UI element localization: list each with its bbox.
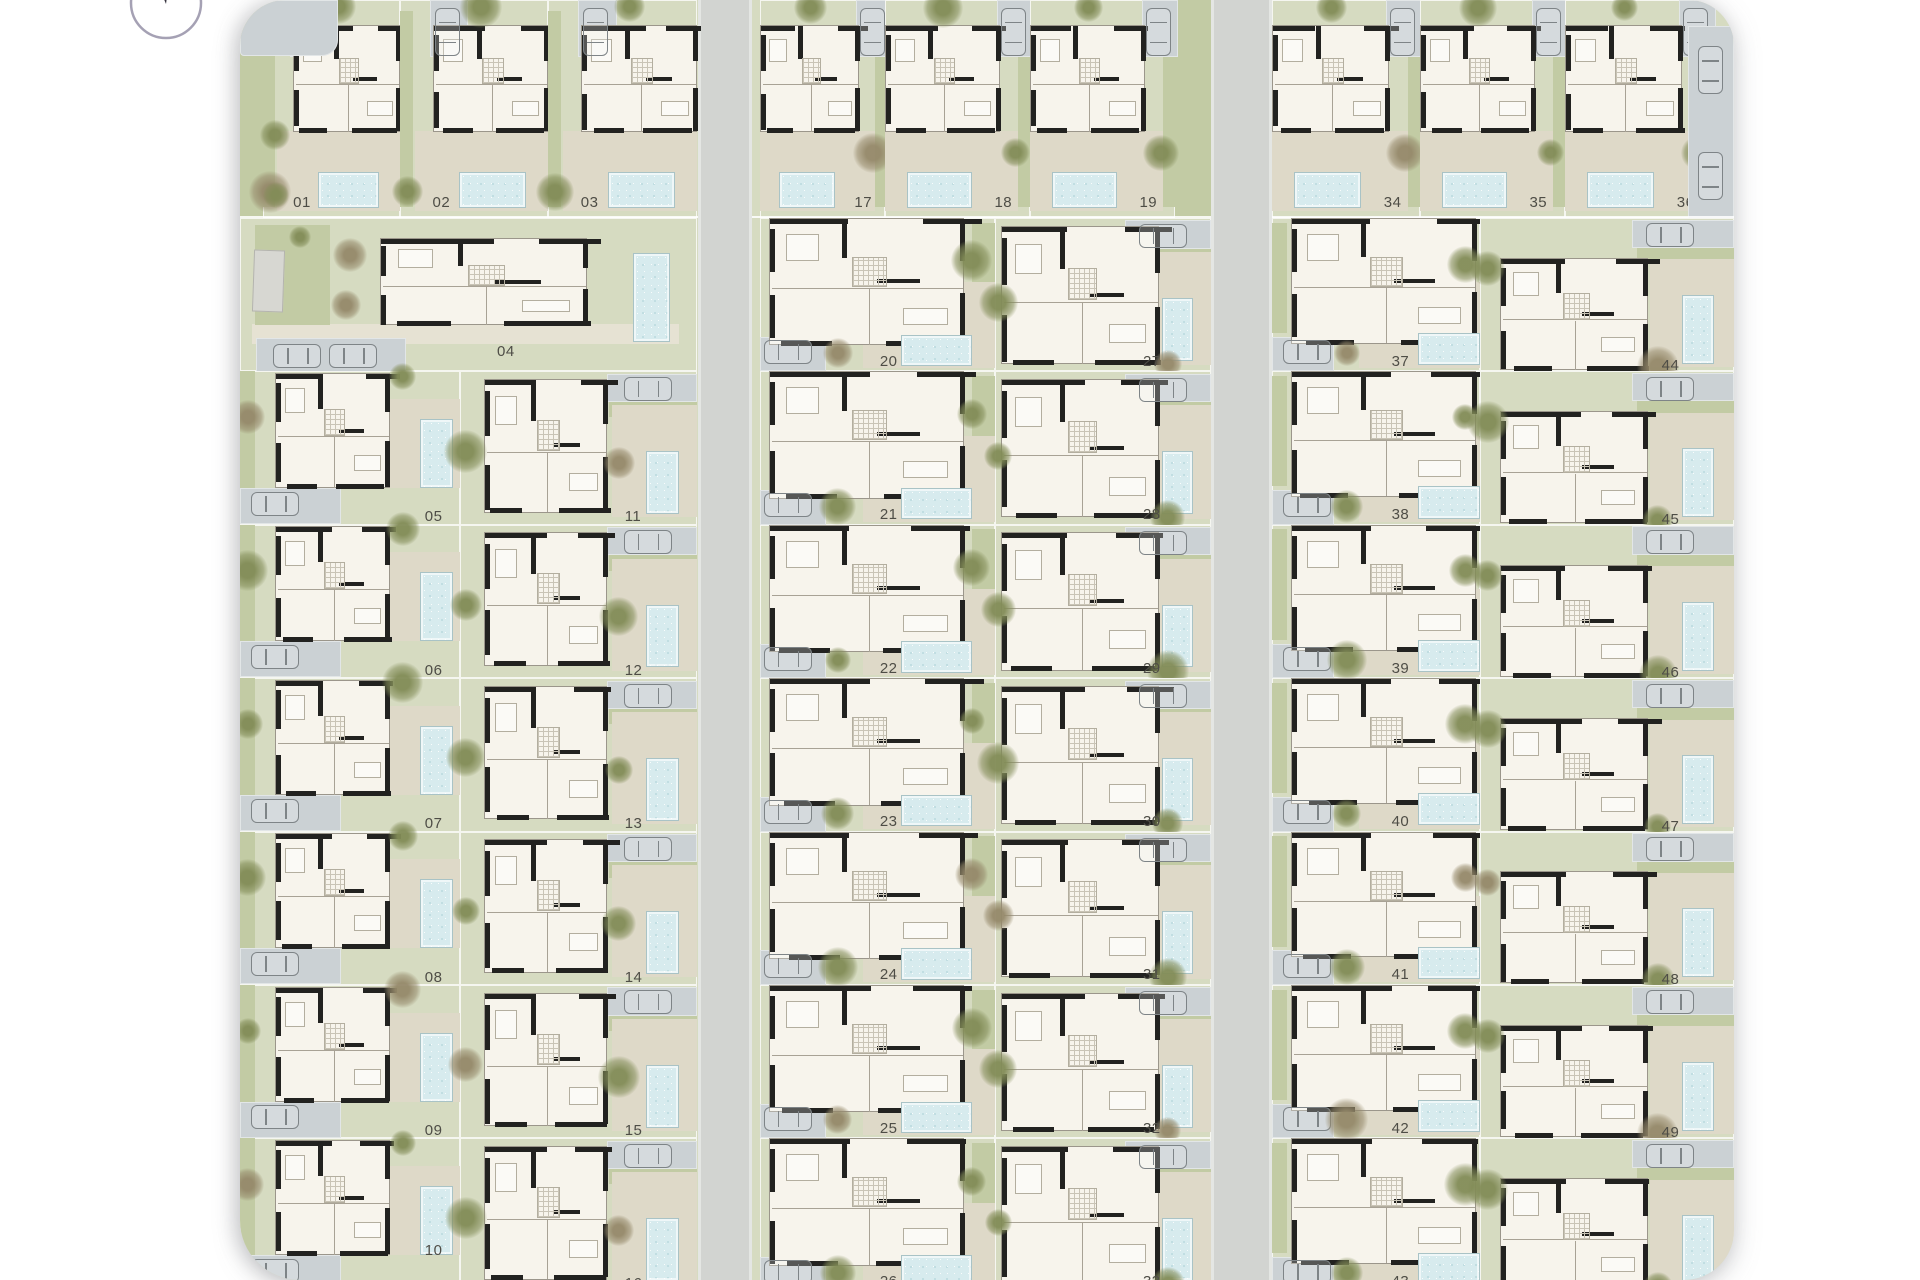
- car-icon: [1646, 223, 1694, 247]
- wall: [276, 1150, 281, 1189]
- wall: [485, 1224, 490, 1269]
- wall: [1031, 35, 1036, 71]
- swimming-pool: [646, 1218, 679, 1280]
- sofa: [354, 762, 381, 778]
- wall: [1015, 820, 1056, 825]
- plot-number-label: 11: [625, 509, 659, 525]
- wall: [1002, 227, 1067, 232]
- dining-table: [1563, 600, 1590, 627]
- wall: [352, 128, 397, 133]
- sofa: [661, 101, 689, 116]
- car-icon: [624, 837, 672, 861]
- wall: [1583, 826, 1645, 831]
- sofa: [1109, 937, 1146, 956]
- wall: [855, 88, 860, 131]
- dining-table: [1370, 410, 1403, 440]
- wall: [1273, 90, 1278, 126]
- wall: [770, 1149, 775, 1192]
- swimming-pool: [646, 911, 679, 974]
- house-footprint: [1001, 686, 1159, 824]
- wall: [1556, 719, 1561, 753]
- wall: [1609, 26, 1614, 59]
- car-icon: [764, 647, 812, 671]
- house-footprint: [484, 993, 607, 1126]
- plot-number-label: 38: [1392, 507, 1426, 523]
- wall: [886, 35, 891, 71]
- wall: [531, 994, 536, 1035]
- wall: [1335, 128, 1384, 133]
- car-icon: [1283, 1260, 1331, 1280]
- wall: [284, 1098, 314, 1103]
- bed: [285, 848, 305, 873]
- swimming-pool: [1682, 448, 1714, 517]
- wall: [1501, 412, 1581, 417]
- house-footprint: [1030, 25, 1145, 132]
- car-icon: [329, 344, 377, 368]
- wall: [1584, 673, 1646, 678]
- wall: [842, 372, 847, 411]
- plot-number-label: 32: [1143, 1121, 1177, 1137]
- bed: [1307, 234, 1339, 261]
- sofa: [367, 101, 393, 116]
- bed: [1513, 1192, 1539, 1216]
- wall: [276, 1212, 281, 1251]
- wall: [1011, 666, 1052, 671]
- wall: [294, 90, 299, 126]
- wall: [1292, 526, 1371, 531]
- wall: [1514, 366, 1552, 371]
- boundary-line: [1272, 216, 1734, 218]
- wall: [381, 246, 386, 276]
- tree-icon: [957, 1167, 986, 1196]
- house-footprint: [1500, 1178, 1647, 1280]
- house-footprint: [275, 833, 389, 948]
- wall: [1616, 259, 1660, 264]
- wall: [485, 610, 490, 655]
- wall: [1002, 851, 1007, 898]
- dining-table: [1563, 1060, 1590, 1087]
- swimming-pool: [1418, 947, 1480, 979]
- dining-table: [324, 409, 345, 436]
- tree-icon: [979, 283, 1018, 322]
- dining-table: [1370, 257, 1403, 287]
- wall: [318, 681, 323, 716]
- car-icon: [1146, 8, 1171, 56]
- house-footprint: [1565, 25, 1682, 132]
- dining-table: [537, 727, 560, 758]
- swimming-pool: [633, 253, 670, 342]
- wall: [276, 681, 320, 686]
- dining-table: [631, 58, 653, 84]
- house-footprint: [760, 25, 859, 132]
- plot-number-label: 33: [1143, 1274, 1177, 1280]
- wall: [531, 533, 536, 574]
- tree-icon: [444, 430, 487, 473]
- garden-strip: [1272, 223, 1287, 333]
- wall: [1002, 698, 1007, 745]
- wall: [531, 687, 536, 728]
- wall: [485, 687, 533, 692]
- wall: [1501, 1246, 1506, 1280]
- wall: [1060, 227, 1065, 269]
- house-footprint: [1001, 532, 1159, 670]
- sofa: [1601, 1257, 1635, 1272]
- wall: [318, 1141, 323, 1176]
- wall: [385, 901, 390, 947]
- wall: [1073, 26, 1078, 59]
- wall: [842, 986, 847, 1025]
- dining-table: [1563, 293, 1590, 320]
- plot-number-label: 23: [880, 814, 914, 830]
- wall: [1361, 679, 1366, 717]
- wall: [770, 996, 775, 1039]
- bed: [786, 848, 819, 875]
- dining-table: [1615, 58, 1637, 84]
- plot-number-label: 25: [880, 1121, 914, 1137]
- tree-icon: [825, 647, 851, 673]
- sofa: [354, 1069, 381, 1085]
- car-icon: [1283, 647, 1331, 671]
- bed: [285, 388, 305, 413]
- wall: [770, 295, 775, 338]
- wall: [1292, 752, 1297, 795]
- wall: [761, 26, 795, 31]
- house-footprint: [1500, 871, 1647, 983]
- plot-number-label: 37: [1392, 354, 1426, 370]
- wall: [1292, 607, 1297, 650]
- car-icon: [1139, 838, 1187, 862]
- sofa: [1418, 767, 1461, 784]
- plot-number-label: 30: [1143, 814, 1177, 830]
- dining-table: [1068, 574, 1097, 606]
- tree-icon: [953, 549, 990, 586]
- sofa: [1109, 477, 1146, 496]
- swimming-pool: [1682, 1062, 1714, 1131]
- road[interactable]: [1211, 0, 1272, 1280]
- wall: [1511, 979, 1549, 984]
- plot-number-label: 08: [425, 970, 459, 986]
- house-footprint: [1291, 218, 1476, 344]
- wall: [603, 380, 608, 424]
- bed: [769, 39, 787, 62]
- house-footprint: [484, 379, 607, 512]
- dining-table: [1563, 1213, 1590, 1240]
- wall: [1292, 908, 1297, 951]
- wall: [1643, 1026, 1648, 1063]
- house-footprint: [1291, 525, 1476, 651]
- wall: [594, 128, 624, 133]
- plot-number-label: 39: [1392, 661, 1426, 677]
- wall: [276, 997, 281, 1036]
- wall: [1501, 331, 1506, 369]
- bed: [786, 1001, 819, 1028]
- swimming-pool: [1418, 486, 1480, 518]
- sofa: [903, 461, 948, 478]
- car-icon: [860, 8, 885, 56]
- wall: [1481, 128, 1529, 133]
- sofa: [569, 933, 598, 951]
- house-footprint: [769, 1138, 964, 1265]
- bed: [1513, 425, 1539, 449]
- car-icon: [1139, 684, 1187, 708]
- bed: [1430, 39, 1450, 62]
- sofa: [1109, 1091, 1146, 1110]
- wall: [276, 536, 281, 575]
- sofa: [1601, 337, 1635, 352]
- dining-table: [324, 1023, 345, 1050]
- wall: [1566, 35, 1571, 71]
- bed: [1307, 848, 1339, 875]
- plot-number-label: 02: [433, 195, 467, 211]
- garden-strip: [1272, 836, 1287, 946]
- house-footprint: [1500, 565, 1647, 677]
- bed: [495, 396, 517, 425]
- swimming-pool: [1682, 908, 1714, 977]
- wall: [842, 219, 847, 258]
- wall: [581, 380, 618, 385]
- wall: [761, 94, 766, 130]
- tree-icon: [1001, 138, 1030, 167]
- wall: [770, 382, 775, 425]
- car-icon: [1139, 1145, 1187, 1169]
- plot-number-label: 22: [880, 661, 914, 677]
- wall: [1556, 1179, 1561, 1213]
- wall: [603, 1147, 608, 1191]
- palm-tree-icon: [955, 858, 988, 891]
- site-plan: 0102031718193435360405060708091011121314…: [240, 0, 1734, 1280]
- wall: [385, 1055, 390, 1101]
- palm-tree-icon: [1334, 340, 1360, 366]
- wall: [603, 687, 608, 731]
- car-icon: [273, 344, 321, 368]
- wall: [996, 88, 1001, 131]
- dining-table: [537, 420, 560, 451]
- swimming-pool: [420, 879, 453, 948]
- tree-icon: [598, 1056, 640, 1098]
- wall: [341, 1098, 389, 1103]
- wall: [342, 944, 390, 949]
- dining-table: [1068, 1188, 1097, 1220]
- wall: [385, 594, 390, 640]
- sofa: [512, 101, 539, 116]
- bed: [285, 695, 305, 720]
- bed: [1015, 397, 1042, 427]
- bed: [285, 541, 305, 566]
- dining-table: [1563, 446, 1590, 473]
- wall: [917, 372, 976, 377]
- plot-number-label: 40: [1392, 814, 1426, 830]
- garden-strip: [1272, 683, 1287, 793]
- plot-number-label: 19: [1139, 195, 1173, 211]
- wall: [1292, 219, 1370, 224]
- car-icon: [1698, 46, 1723, 94]
- car-icon: [1283, 1107, 1331, 1131]
- wall: [385, 1141, 390, 1179]
- wall: [1292, 833, 1371, 838]
- tree-icon: [263, 182, 289, 208]
- house-footprint: [885, 25, 1000, 132]
- wall: [1361, 526, 1366, 564]
- dining-table: [339, 58, 359, 84]
- car-icon: [583, 8, 608, 56]
- bed: [786, 387, 819, 414]
- wall: [770, 753, 775, 796]
- house-footprint: [484, 839, 607, 972]
- tree-icon: [392, 176, 423, 207]
- road[interactable]: [698, 0, 752, 1280]
- car-icon: [624, 530, 672, 554]
- sofa: [1353, 101, 1381, 116]
- wall: [1292, 1064, 1297, 1107]
- wall: [495, 1122, 527, 1127]
- wall: [1531, 88, 1536, 131]
- wall: [770, 451, 775, 494]
- tree-icon: [821, 797, 854, 830]
- wall: [925, 679, 984, 684]
- house-footprint: [275, 373, 389, 488]
- plot-number-label: 16: [625, 1276, 659, 1280]
- wall: [1385, 88, 1390, 131]
- car-icon: [1390, 8, 1415, 56]
- wall: [767, 128, 793, 133]
- car-icon: [1646, 1144, 1694, 1168]
- wall: [770, 219, 848, 224]
- car-icon: [251, 1259, 299, 1280]
- car-icon: [1283, 493, 1331, 517]
- bed: [1015, 704, 1042, 734]
- car-icon: [624, 377, 672, 401]
- house-footprint: [1500, 1025, 1647, 1137]
- house-footprint: [275, 1140, 389, 1255]
- wall: [1273, 26, 1315, 31]
- plot-number-label: 06: [425, 663, 459, 679]
- wall: [539, 239, 601, 244]
- wall: [485, 994, 534, 999]
- swimming-pool: [1682, 602, 1714, 671]
- car-icon: [1698, 152, 1723, 200]
- sofa: [1499, 101, 1526, 116]
- wall: [318, 527, 323, 562]
- car-icon: [764, 1260, 812, 1280]
- wall: [318, 834, 323, 869]
- plot-number-label: 26: [880, 1274, 914, 1280]
- palm-tree-icon: [603, 1215, 634, 1246]
- wall: [1002, 840, 1068, 845]
- wall: [770, 843, 775, 886]
- swimming-pool: [459, 172, 526, 208]
- swimming-pool: [1418, 1253, 1480, 1280]
- wall: [276, 598, 281, 637]
- wall: [1060, 1147, 1065, 1189]
- wall: [1361, 833, 1366, 871]
- dining-table: [852, 410, 887, 440]
- wall: [485, 1005, 490, 1050]
- palm-tree-icon: [1474, 869, 1501, 896]
- wall: [1501, 719, 1582, 724]
- wall: [1515, 1133, 1553, 1138]
- tree-icon: [450, 589, 482, 621]
- wall: [494, 661, 526, 666]
- boundary-line: [240, 216, 698, 218]
- bed: [786, 694, 819, 721]
- tree-icon: [605, 756, 633, 784]
- swimming-pool: [779, 172, 835, 208]
- wall: [497, 815, 529, 820]
- wall: [1292, 1139, 1372, 1144]
- bed: [1513, 272, 1539, 296]
- house-footprint: [769, 525, 964, 652]
- garden-shed: [252, 249, 285, 312]
- entry-driveway: [240, 0, 338, 56]
- wall: [842, 526, 847, 565]
- wall: [496, 128, 544, 133]
- wall: [1582, 979, 1644, 984]
- wall: [276, 843, 281, 882]
- car-icon: [764, 954, 812, 978]
- tree-icon: [388, 821, 418, 851]
- wall: [770, 229, 775, 272]
- wall: [1618, 719, 1662, 724]
- wall: [485, 1079, 490, 1124]
- dining-table: [1322, 58, 1344, 84]
- wall: [886, 88, 891, 124]
- wall: [531, 380, 536, 421]
- bed: [1513, 732, 1539, 756]
- house-footprint: [484, 686, 607, 819]
- dining-table: [852, 1024, 887, 1054]
- wall: [1501, 633, 1506, 671]
- dining-table: [1079, 58, 1100, 84]
- wall: [343, 791, 391, 796]
- sofa: [1109, 101, 1136, 116]
- plot-number-label: 01: [293, 195, 327, 211]
- wall: [1002, 533, 1067, 538]
- plot-number-label: 29: [1143, 661, 1177, 677]
- car-icon: [1139, 991, 1187, 1015]
- wall: [477, 26, 482, 59]
- plot-number-label: 28: [1143, 507, 1177, 523]
- plot-number-label: 24: [880, 967, 914, 983]
- dining-table: [1370, 1177, 1403, 1207]
- wall: [276, 690, 281, 729]
- car-icon: [251, 952, 299, 976]
- wall: [1678, 26, 1683, 61]
- sofa: [1418, 1074, 1461, 1091]
- plot-number-label: 27: [1143, 354, 1177, 370]
- bed: [495, 703, 517, 732]
- tree-icon: [952, 1008, 992, 1048]
- car-icon: [764, 493, 812, 517]
- wall: [1009, 973, 1050, 978]
- swimming-pool: [646, 451, 679, 514]
- tree-icon: [445, 1197, 487, 1239]
- wall: [381, 295, 386, 325]
- tree-icon: [985, 1209, 1012, 1236]
- house-footprint: [1500, 718, 1647, 830]
- sofa: [354, 608, 381, 624]
- wall: [1292, 1149, 1297, 1192]
- wall: [276, 901, 281, 940]
- sofa: [354, 1222, 381, 1238]
- wall: [1281, 128, 1311, 133]
- wall: [485, 840, 547, 845]
- wall: [485, 923, 490, 968]
- tree-icon: [260, 120, 290, 150]
- tree-icon: [977, 742, 1019, 784]
- dining-table: [1370, 871, 1403, 901]
- wall: [693, 26, 698, 61]
- wall: [1060, 840, 1065, 882]
